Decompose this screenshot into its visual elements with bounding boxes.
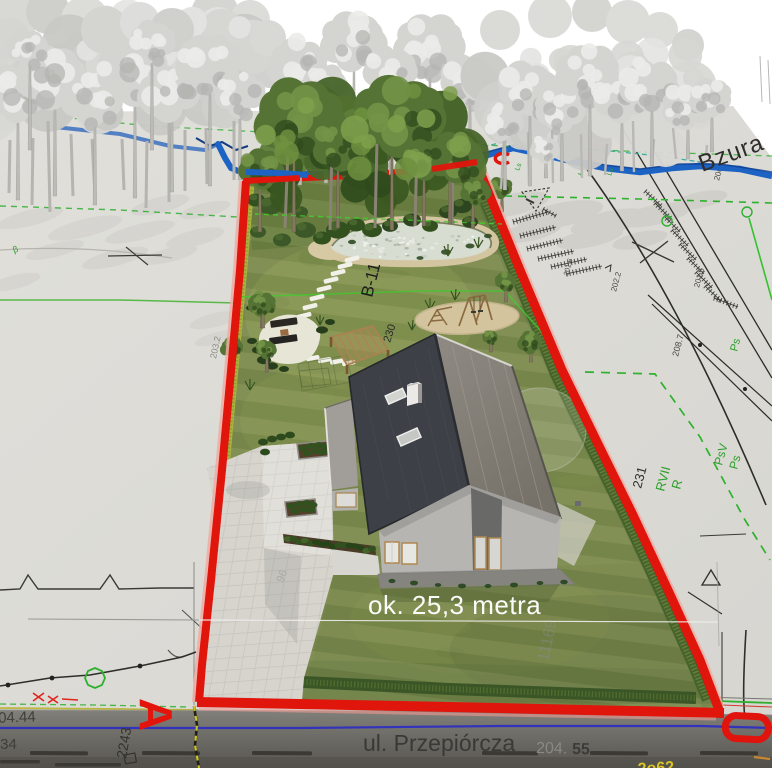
svg-text:55: 55 (572, 741, 590, 758)
svg-text:.34: .34 (0, 736, 17, 753)
svg-text:2o62: 2o62 (637, 759, 674, 768)
svg-text:A: A (130, 698, 182, 731)
svg-text:ok. 25,3 metra: ok. 25,3 metra (368, 590, 541, 620)
svg-text:ul. Przepiórcza: ul. Przepiórcza (363, 730, 515, 756)
svg-text:204.: 204. (536, 740, 567, 758)
svg-text:204.44: 204.44 (0, 708, 36, 727)
